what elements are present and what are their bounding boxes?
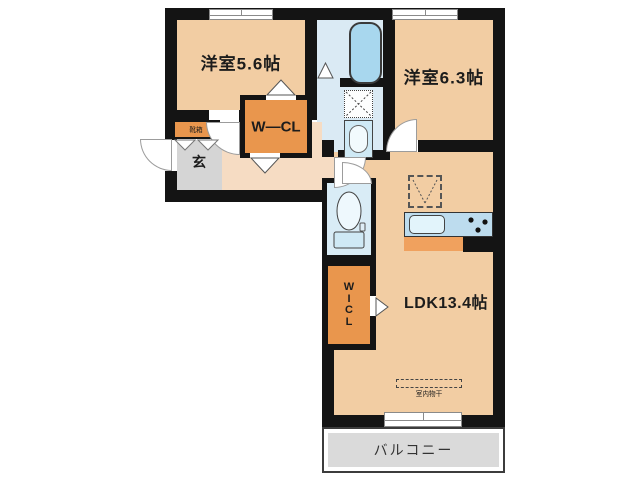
floorplan: バルコニー 洋室5.6帖 洋室6.3帖 W―CL 玄 靴箱 LDK13.4帖 W… xyxy=(0,0,640,480)
indoor-drying-label: 室内物干 xyxy=(416,389,443,399)
wall xyxy=(165,190,334,202)
refrigerator-v-mark xyxy=(410,177,440,206)
stove-burners-icon xyxy=(463,214,493,236)
washbasin-icon xyxy=(344,120,373,158)
balcony-label: バルコニー xyxy=(374,440,454,460)
balcony-sliding-window-icon xyxy=(384,412,462,427)
window xyxy=(392,9,458,20)
bathtub-icon xyxy=(349,22,382,84)
washing-machine-cross xyxy=(345,91,372,117)
wcl-label: W―CL xyxy=(251,119,300,136)
entrance-label: 玄 xyxy=(192,152,206,172)
balcony-deck: バルコニー xyxy=(328,433,499,467)
wall xyxy=(463,237,493,252)
counter-front xyxy=(404,237,463,251)
washbasin-bowl xyxy=(349,125,368,153)
bedroom1-label: 洋室5.6帖 xyxy=(201,50,282,75)
ldk-label: LDK13.4帖 xyxy=(404,289,488,313)
shoe-cabinet-door-icon xyxy=(173,139,220,152)
wcl-folding-door-icon xyxy=(250,157,280,174)
entrance-door-arc xyxy=(140,139,172,171)
wall xyxy=(165,8,177,202)
wicl-door-icon xyxy=(375,296,390,318)
washing-machine-space-icon xyxy=(344,90,373,118)
wcl-folding-door-icon xyxy=(266,79,296,96)
wall xyxy=(493,8,505,427)
toilet-icon xyxy=(327,183,371,255)
toilet-room xyxy=(322,178,376,260)
kitchen-sink-icon xyxy=(409,215,445,234)
wicl-label: W I C L xyxy=(344,282,354,328)
shoebox-label: 靴箱 xyxy=(189,125,202,135)
bedroom2-label: 洋室6.3帖 xyxy=(404,64,485,89)
window xyxy=(209,9,273,20)
refrigerator-space-icon xyxy=(408,175,442,208)
bathroom-folding-door-icon xyxy=(316,62,335,79)
balcony: バルコニー xyxy=(322,427,505,473)
indoor-drying-rod-icon xyxy=(396,379,462,388)
